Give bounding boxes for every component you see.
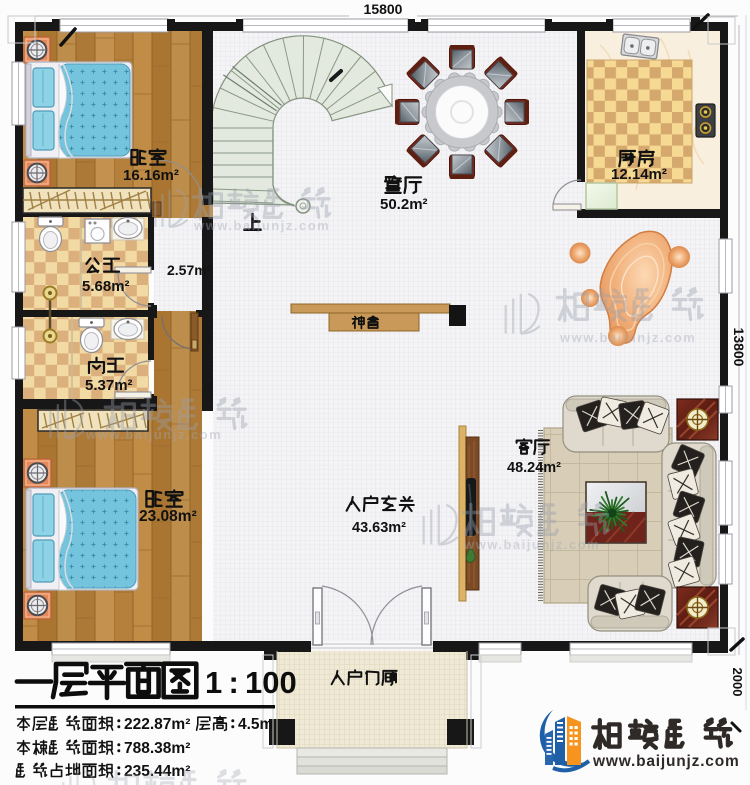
svg-text:4.5m: 4.5m — [238, 716, 273, 733]
svg-text:1 : 100: 1 : 100 — [205, 665, 297, 700]
svg-text:23.08m²: 23.08m² — [139, 508, 197, 525]
svg-text:222.87m²: 222.87m² — [124, 716, 190, 733]
svg-text:www.baijunjz.com: www.baijunjz.com — [592, 753, 740, 770]
svg-text:5.68m²: 5.68m² — [82, 278, 130, 295]
svg-text:43.63m²: 43.63m² — [352, 520, 406, 536]
svg-text:788.38m²: 788.38m² — [124, 740, 190, 757]
svg-text:www.baijunjz.com: www.baijunjz.com — [463, 537, 600, 552]
svg-text:12.14m²: 12.14m² — [611, 166, 667, 183]
svg-text:48.24m²: 48.24m² — [507, 460, 561, 476]
svg-text:www.baijunjz.com: www.baijunjz.com — [85, 427, 222, 442]
svg-text:5.37m²: 5.37m² — [85, 377, 133, 394]
svg-text:15800: 15800 — [364, 1, 403, 17]
svg-text:13800: 13800 — [731, 328, 747, 367]
svg-text:2.57m²: 2.57m² — [167, 262, 212, 278]
svg-text:www.baijunjz.com: www.baijunjz.com — [559, 330, 696, 345]
svg-text:50.2m²: 50.2m² — [380, 196, 428, 213]
svg-text:www.baijunjz.com: www.baijunjz.com — [193, 218, 330, 233]
svg-text:16.16m²: 16.16m² — [123, 167, 179, 184]
svg-text:2000: 2000 — [730, 668, 745, 697]
